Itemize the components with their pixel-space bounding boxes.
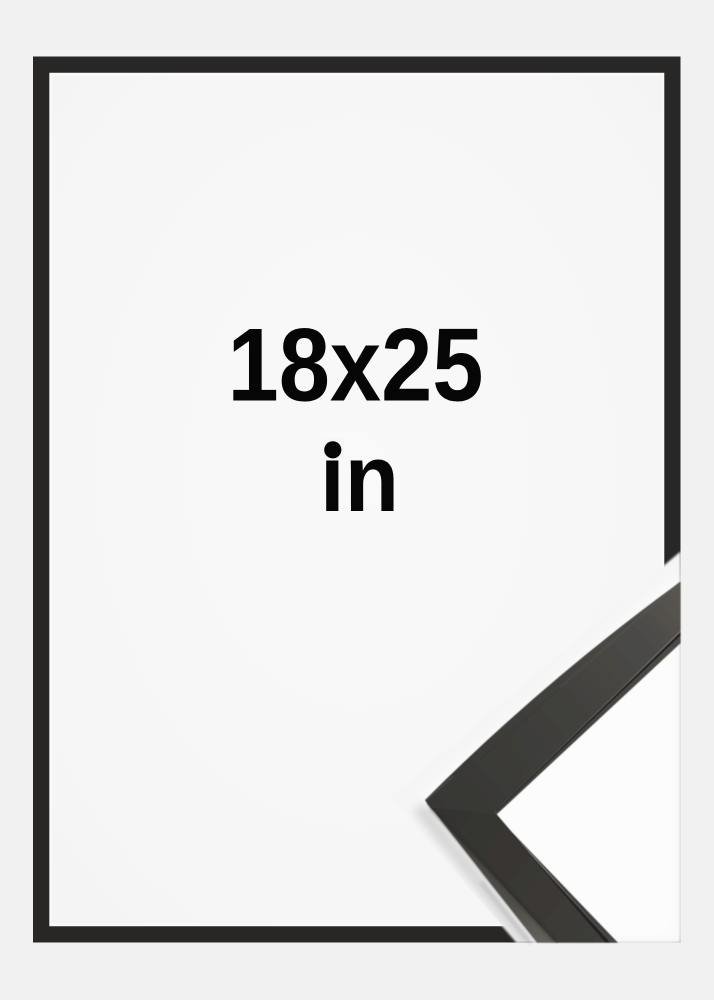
svg-text:18x25: 18x25 xyxy=(228,308,484,424)
